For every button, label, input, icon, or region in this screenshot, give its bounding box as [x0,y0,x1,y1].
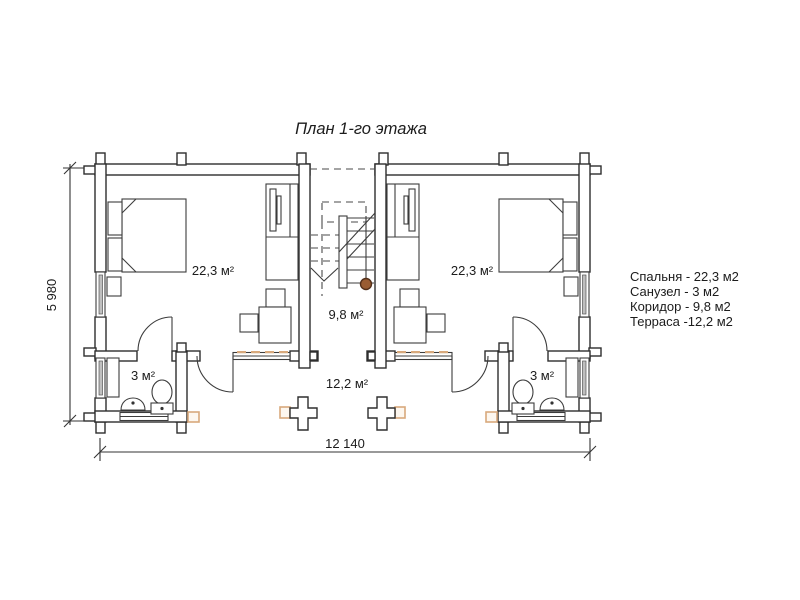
legend-item-bedroom: Спальня - 22,3 м2 [630,269,739,284]
legend: Спальня - 22,3 м2 Санузел - 3 м2 Коридор… [630,269,739,329]
dimension-height-label: 5 980 [44,279,59,312]
bathroom-door [138,317,172,351]
staircase [310,169,375,296]
window-terrace-wall [233,351,290,360]
double-bed [108,199,186,272]
room-label-bedroom-right: 22,3 м² [451,263,494,278]
page-title: План 1-го этажа [295,120,427,138]
window-left-wall-bathroom [96,358,105,398]
legend-item-terrace: Терраса -12,2 м2 [630,314,733,329]
room-label-bedroom-left: 22,3 м² [192,263,235,278]
room-label-bathroom-right: 3 м² [530,368,555,383]
room-label-bathroom-left: 3 м² [131,368,156,383]
legend-item-corridor: Коридор - 9,8 м2 [630,299,731,314]
dimension-width-label: 12 140 [325,436,365,451]
window-left-wall-bedroom [96,272,105,317]
toilet-icon [151,380,173,414]
stair-newel-post [361,279,372,290]
desk-and-chairs [240,289,291,343]
dwelling-unit-right [367,153,601,433]
nightstand [107,277,121,296]
wardrobe [266,184,298,280]
terrace-door [197,356,233,392]
sink-icon [121,398,145,410]
bathroom-shelf [107,358,119,397]
legend-item-bathroom: Санузел - 3 м2 [630,284,719,299]
dimension-width: 12 140 [94,436,596,461]
stair-direction-arrow [311,268,338,281]
floor-plan-page: 5 980 12 140 План 1-го этажа 22,3 м² 22,… [0,0,800,600]
dwelling-unit-left [84,153,318,433]
room-label-terrace: 12,2 м² [326,376,369,391]
floor-plan-drawing: 5 980 12 140 План 1-го этажа 22,3 м² 22,… [0,0,800,600]
terrace-post [280,397,317,430]
dimension-height: 5 980 [44,162,84,427]
room-label-corridor: 9,8 м² [329,307,365,322]
